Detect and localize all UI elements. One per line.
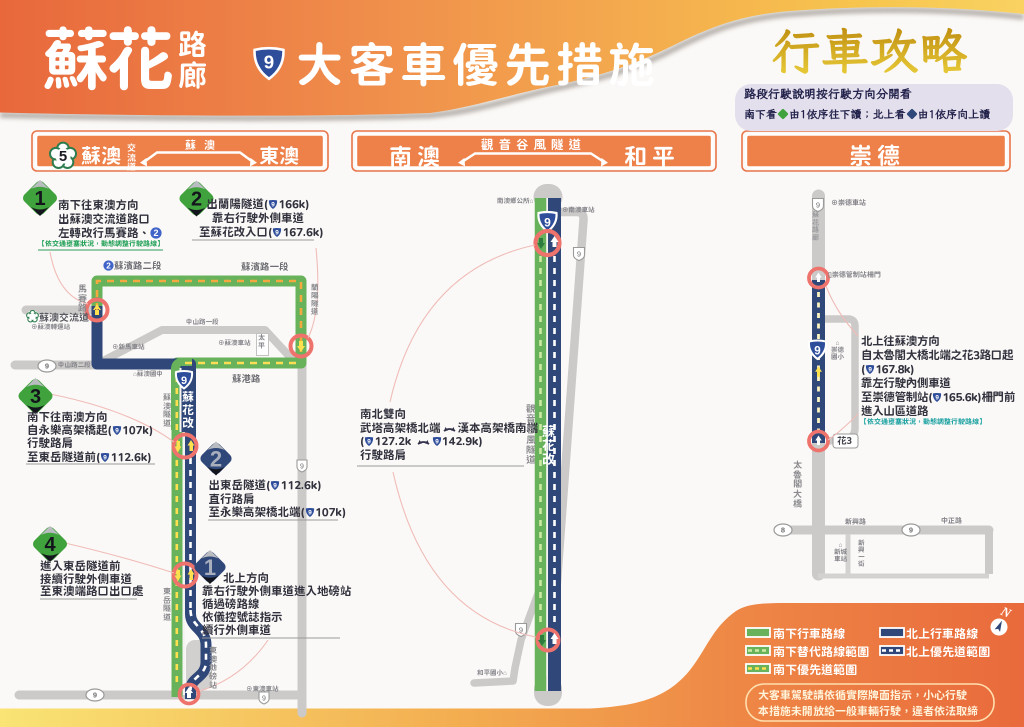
svg-text:2: 2 — [210, 447, 222, 472]
svg-text:9: 9 — [262, 695, 266, 702]
svg-text:3: 3 — [30, 386, 41, 408]
svg-text:1: 1 — [34, 188, 45, 210]
svg-text:5: 5 — [59, 148, 67, 165]
svg-text:9: 9 — [308, 510, 312, 517]
svg-text:9: 9 — [45, 362, 49, 371]
svg-text:9: 9 — [544, 216, 551, 230]
svg-text:2: 2 — [153, 228, 158, 238]
svg-text:9: 9 — [115, 428, 119, 435]
svg-text:9: 9 — [435, 439, 439, 446]
svg-text:9: 9 — [276, 230, 280, 237]
svg-text:4: 4 — [44, 534, 56, 556]
svg-text:8: 8 — [781, 526, 785, 535]
svg-text:9: 9 — [93, 691, 97, 700]
svg-text:9: 9 — [909, 526, 913, 535]
svg-text:9: 9 — [368, 439, 372, 446]
svg-text:9: 9 — [271, 201, 275, 208]
svg-text:9: 9 — [814, 345, 820, 357]
svg-text:9: 9 — [274, 482, 278, 489]
svg-text:9: 9 — [264, 52, 274, 73]
svg-text:9: 9 — [181, 375, 187, 387]
svg-text:1: 1 — [204, 555, 216, 580]
svg-text:9: 9 — [300, 463, 304, 470]
svg-text:2: 2 — [106, 261, 111, 270]
svg-text:9: 9 — [104, 454, 108, 461]
svg-text:9: 9 — [816, 201, 820, 210]
svg-text:9: 9 — [577, 250, 581, 259]
